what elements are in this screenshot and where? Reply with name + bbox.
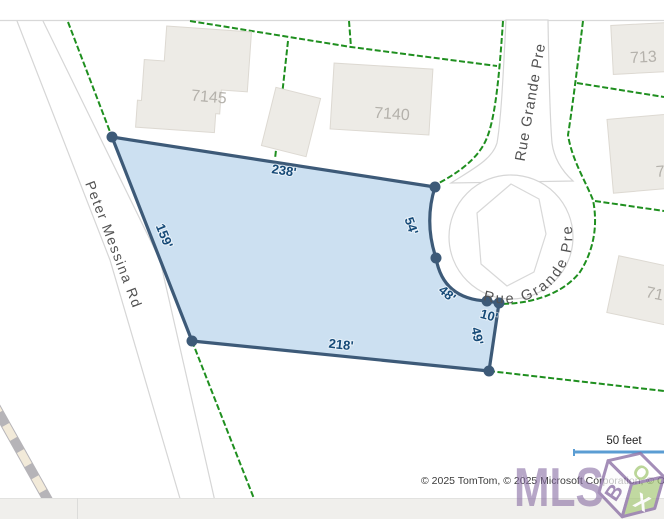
house-number-right-mid: 7 xyxy=(655,163,664,181)
building-right-mid xyxy=(607,112,664,193)
dimension-218: 218' xyxy=(328,336,354,354)
mlsbox-logo: MLS O B X xyxy=(514,445,664,519)
building-7140 xyxy=(330,63,433,135)
mlsbox-logo-text: MLS xyxy=(514,456,604,518)
house-number-7145: 7145 xyxy=(190,87,227,107)
scale-label: 50 feet xyxy=(606,435,642,447)
house-number-7140: 7140 xyxy=(374,105,411,124)
plat-map-canvas[interactable]: 7145 7140 713 7 71 238' 159' 218' 54' 48… xyxy=(0,0,664,519)
house-number-713: 713 xyxy=(630,49,658,67)
